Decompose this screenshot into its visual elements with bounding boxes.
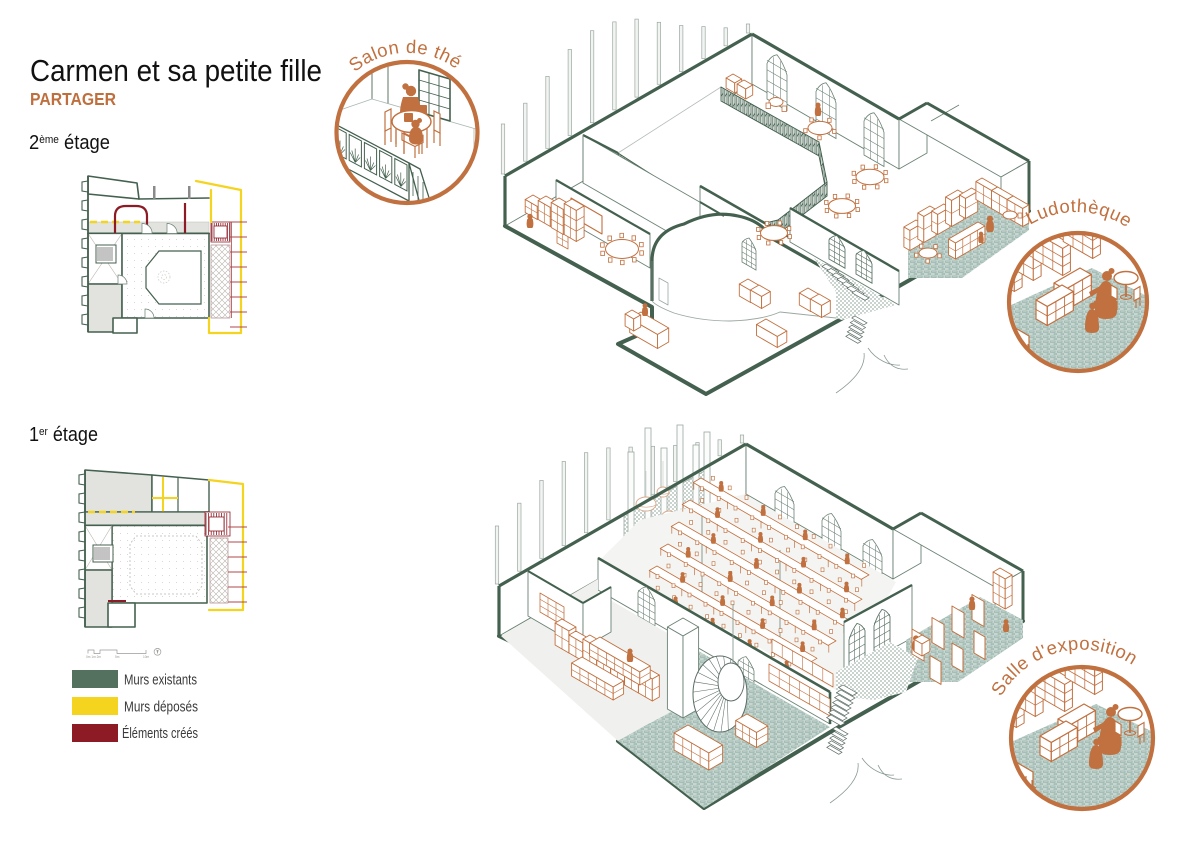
svg-text:0m 1m 2m: 0m 1m 2m xyxy=(86,655,101,659)
svg-text:5m: 5m xyxy=(115,655,120,659)
svg-text:10m: 10m xyxy=(143,655,150,659)
svg-text:Carmen et sa petite fille: Carmen et sa petite fille xyxy=(30,53,322,88)
svg-text:Murs existants: Murs existants xyxy=(124,672,197,689)
svg-text:Murs déposés: Murs déposés xyxy=(124,699,198,716)
svg-text:PARTAGER: PARTAGER xyxy=(30,89,116,109)
svg-text:Éléments créés: Éléments créés xyxy=(122,725,198,742)
